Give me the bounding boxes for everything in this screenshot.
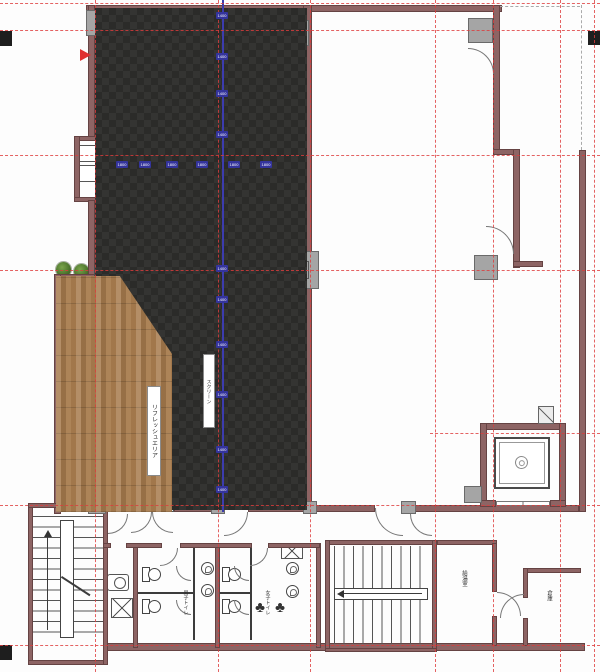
door-arc xyxy=(468,48,494,74)
mens-toilet-label: 男子トイレ xyxy=(181,576,191,628)
door-arc xyxy=(160,548,178,566)
wall-fixture xyxy=(538,406,554,424)
dimension-line xyxy=(222,0,224,512)
grid-line xyxy=(0,3,600,4)
stall-wall xyxy=(220,592,250,594)
stair2-wall xyxy=(325,540,437,545)
toilet-icon xyxy=(142,566,162,582)
stair-arrow xyxy=(47,535,48,630)
door-arc xyxy=(224,512,248,536)
stair-arrow xyxy=(344,593,422,594)
sink-icon xyxy=(107,574,129,591)
grid-line xyxy=(435,0,436,672)
sink-icon xyxy=(286,585,299,598)
wall-far-east xyxy=(579,150,586,512)
sink-icon xyxy=(286,562,299,575)
dashed-outline xyxy=(500,6,580,7)
dimension-chip: 1400 xyxy=(216,53,228,60)
dimension-chip: 1400 xyxy=(216,391,228,398)
column xyxy=(464,486,482,503)
door-arc xyxy=(250,548,268,566)
dimension-chip: 1400 xyxy=(216,341,228,348)
stall-wall xyxy=(193,548,195,640)
kitchenette-label: 給湯室 xyxy=(458,558,470,598)
dimension-chip: 1800 xyxy=(116,161,128,168)
grid-line xyxy=(430,433,600,434)
roomB-wall xyxy=(437,540,497,545)
stair-stringer xyxy=(334,588,428,600)
restroom-wall xyxy=(316,543,321,648)
dimension-chip: 1800 xyxy=(166,161,178,168)
dimension-chip: 1800 xyxy=(228,161,240,168)
dimension-chip: 1400 xyxy=(216,131,228,138)
dimension-chip: 1400 xyxy=(216,265,228,272)
dimension-chip: 1400 xyxy=(216,12,228,19)
restroom-wall xyxy=(268,543,320,548)
restroom-wall xyxy=(180,543,252,548)
wall-east xyxy=(513,149,520,268)
door-arc xyxy=(410,514,432,536)
door-arc xyxy=(152,512,173,533)
service-box xyxy=(111,598,133,618)
grid-tick xyxy=(0,31,12,46)
dimension-chip: 1400 xyxy=(216,486,228,493)
grid-line xyxy=(0,30,600,31)
screen-label: スクリーン xyxy=(203,354,215,428)
grid-line xyxy=(0,155,600,156)
door-arc xyxy=(131,512,152,533)
alcove-wall xyxy=(74,136,80,202)
roomC-wall xyxy=(523,618,528,646)
dimension-chip: 1800 xyxy=(196,161,208,168)
womens-toilet-label: 女子トイレ xyxy=(263,576,273,628)
grid-line xyxy=(310,0,311,672)
dashed-outline xyxy=(581,5,582,150)
grid-line xyxy=(0,505,600,506)
toilet-icon xyxy=(142,598,162,614)
dimension-chip: 1400 xyxy=(216,296,228,303)
door-arc xyxy=(108,514,128,534)
grid-line xyxy=(95,0,96,672)
grid-line xyxy=(493,0,494,672)
restroom-wall xyxy=(103,543,111,548)
dimension-chip: 1800 xyxy=(260,161,272,168)
stair2-wall xyxy=(325,540,330,652)
wall-east xyxy=(513,261,543,267)
stair-wall xyxy=(28,660,108,665)
urinal-icon xyxy=(201,562,214,575)
grid-tick xyxy=(0,645,12,660)
arrow-head xyxy=(44,530,52,537)
grid-line xyxy=(0,270,600,271)
urinal-icon xyxy=(201,584,214,597)
dimension-chip: 1400 xyxy=(216,90,228,97)
entrance-arrow xyxy=(80,49,91,61)
wall-east xyxy=(493,5,500,155)
grid-line xyxy=(560,0,561,672)
dimension-chip: 1800 xyxy=(139,161,151,168)
column xyxy=(401,501,416,514)
dimension-chip: 1400 xyxy=(216,446,228,453)
tree-icon: ♣ xyxy=(272,600,288,618)
restroom-wall xyxy=(133,543,138,648)
restroom-wall xyxy=(126,543,162,548)
arrow-head xyxy=(337,590,344,598)
column xyxy=(474,255,498,280)
stair2-wall xyxy=(325,648,437,652)
floor-plan: リフレッシュエリア スクリーン 男子トイレ 女子トイレ 給湯室 倉庫 ♣♣140… xyxy=(0,0,600,672)
refresh-area-label: リフレッシュエリア xyxy=(147,386,161,476)
door-arc xyxy=(486,226,514,254)
roomC-wall xyxy=(523,568,581,573)
door-arc xyxy=(375,508,403,536)
grid-line xyxy=(0,645,600,646)
grid-line xyxy=(218,0,219,672)
storage-label: 倉庫 xyxy=(543,580,555,610)
grid-line xyxy=(594,0,595,672)
